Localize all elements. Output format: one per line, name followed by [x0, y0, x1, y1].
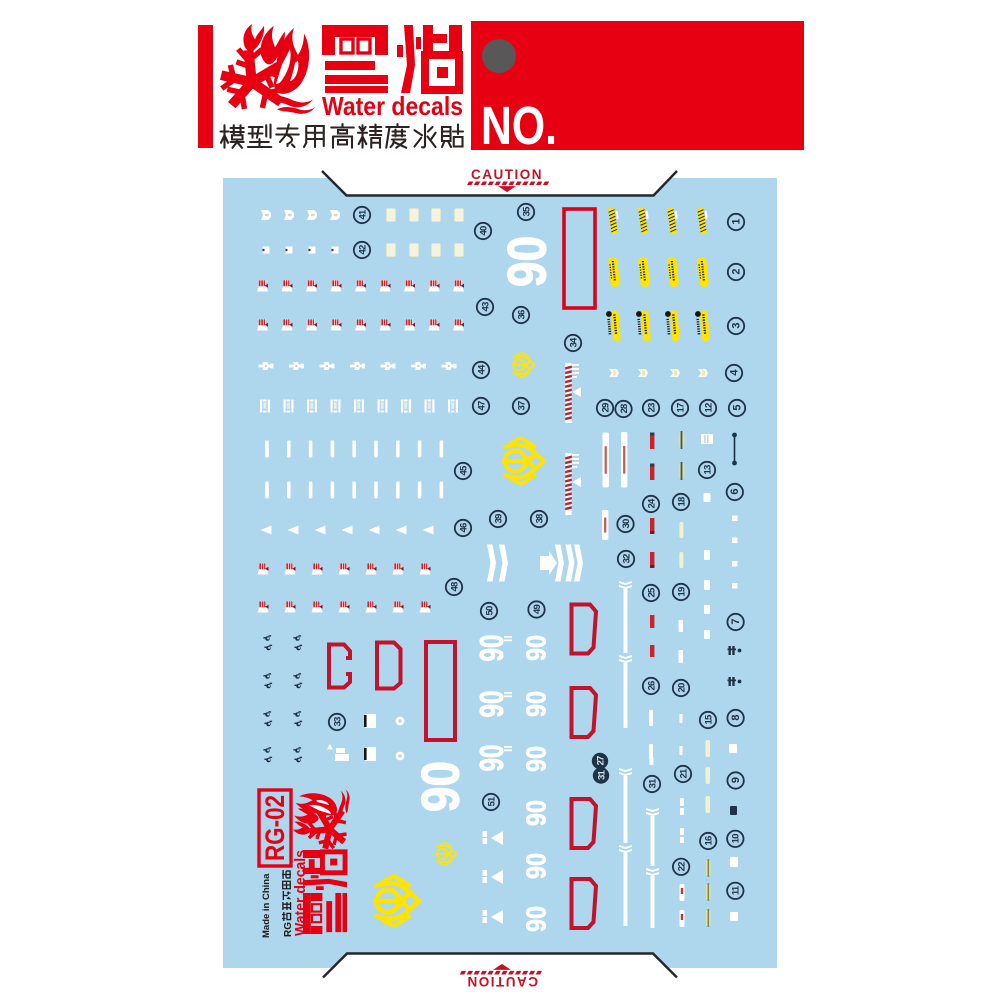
- svg-text:5: 5: [731, 405, 743, 411]
- svg-text:37: 37: [516, 401, 527, 411]
- svg-text:35: 35: [521, 206, 532, 217]
- svg-text:39: 39: [493, 514, 504, 524]
- svg-text:17: 17: [675, 403, 686, 413]
- svg-text:90: 90: [497, 236, 557, 287]
- svg-text:11: 11: [731, 885, 742, 895]
- svg-text:16: 16: [704, 836, 715, 846]
- svg-text:20: 20: [676, 683, 687, 693]
- svg-text:22: 22: [677, 862, 688, 872]
- svg-text:28: 28: [619, 403, 630, 414]
- svg-text:30: 30: [621, 519, 632, 529]
- svg-text:19: 19: [676, 587, 687, 597]
- svg-text:40: 40: [478, 226, 489, 236]
- svg-text:Water decals: Water decals: [322, 91, 463, 121]
- svg-text:CAUTION: CAUTION: [466, 974, 538, 989]
- svg-text:47: 47: [476, 401, 487, 411]
- svg-text:90: 90: [521, 746, 552, 772]
- svg-text:Water decals: Water decals: [292, 850, 309, 936]
- svg-text:12: 12: [703, 403, 714, 413]
- svg-text:90: 90: [474, 745, 511, 772]
- svg-text:36: 36: [516, 310, 527, 320]
- svg-text:13: 13: [702, 465, 713, 475]
- svg-text:90: 90: [474, 691, 511, 718]
- svg-text:18: 18: [676, 496, 687, 507]
- svg-text:31: 31: [596, 770, 607, 781]
- svg-text:51: 51: [486, 796, 497, 807]
- svg-text:46: 46: [458, 523, 469, 533]
- svg-text:50: 50: [484, 606, 495, 616]
- svg-text:21: 21: [678, 768, 689, 779]
- svg-text:24: 24: [646, 498, 657, 509]
- svg-text:90: 90: [521, 691, 552, 717]
- svg-text:8: 8: [730, 715, 742, 721]
- svg-text:90: 90: [521, 853, 552, 879]
- svg-text:25: 25: [646, 587, 657, 598]
- svg-text:6: 6: [729, 489, 741, 495]
- svg-text:Made in China: Made in China: [261, 873, 272, 938]
- svg-text:38: 38: [534, 513, 545, 524]
- svg-text:41: 41: [357, 209, 368, 220]
- svg-text:90: 90: [474, 635, 511, 662]
- svg-text:34: 34: [568, 337, 579, 348]
- svg-text:9: 9: [730, 777, 742, 783]
- svg-text:44: 44: [476, 364, 487, 375]
- svg-text:26: 26: [646, 681, 657, 691]
- svg-text:RG-02: RG-02: [260, 795, 290, 861]
- svg-text:32: 32: [621, 554, 632, 564]
- svg-text:15: 15: [703, 714, 714, 725]
- svg-text:90: 90: [521, 635, 552, 661]
- svg-text:CAUTION: CAUTION: [471, 167, 543, 182]
- svg-text:90: 90: [521, 906, 552, 932]
- svg-text:42: 42: [357, 245, 368, 255]
- svg-text:2: 2: [730, 269, 742, 275]
- svg-text:49: 49: [532, 605, 543, 615]
- svg-text:33: 33: [332, 717, 343, 727]
- svg-text:90: 90: [521, 800, 552, 826]
- svg-text:43: 43: [480, 302, 491, 312]
- svg-text:23: 23: [646, 403, 657, 413]
- svg-text:RG: RG: [283, 922, 294, 937]
- svg-text:1: 1: [730, 219, 742, 225]
- svg-text:3: 3: [730, 323, 742, 329]
- svg-text:29: 29: [600, 403, 611, 413]
- svg-text:45: 45: [458, 465, 469, 476]
- svg-text:90: 90: [411, 761, 470, 812]
- svg-text:7: 7: [730, 619, 742, 625]
- svg-text:10: 10: [731, 834, 742, 844]
- svg-text:31: 31: [647, 778, 658, 789]
- svg-text:NO.: NO.: [481, 96, 557, 156]
- svg-text:48: 48: [449, 581, 460, 592]
- svg-text:27: 27: [595, 756, 606, 766]
